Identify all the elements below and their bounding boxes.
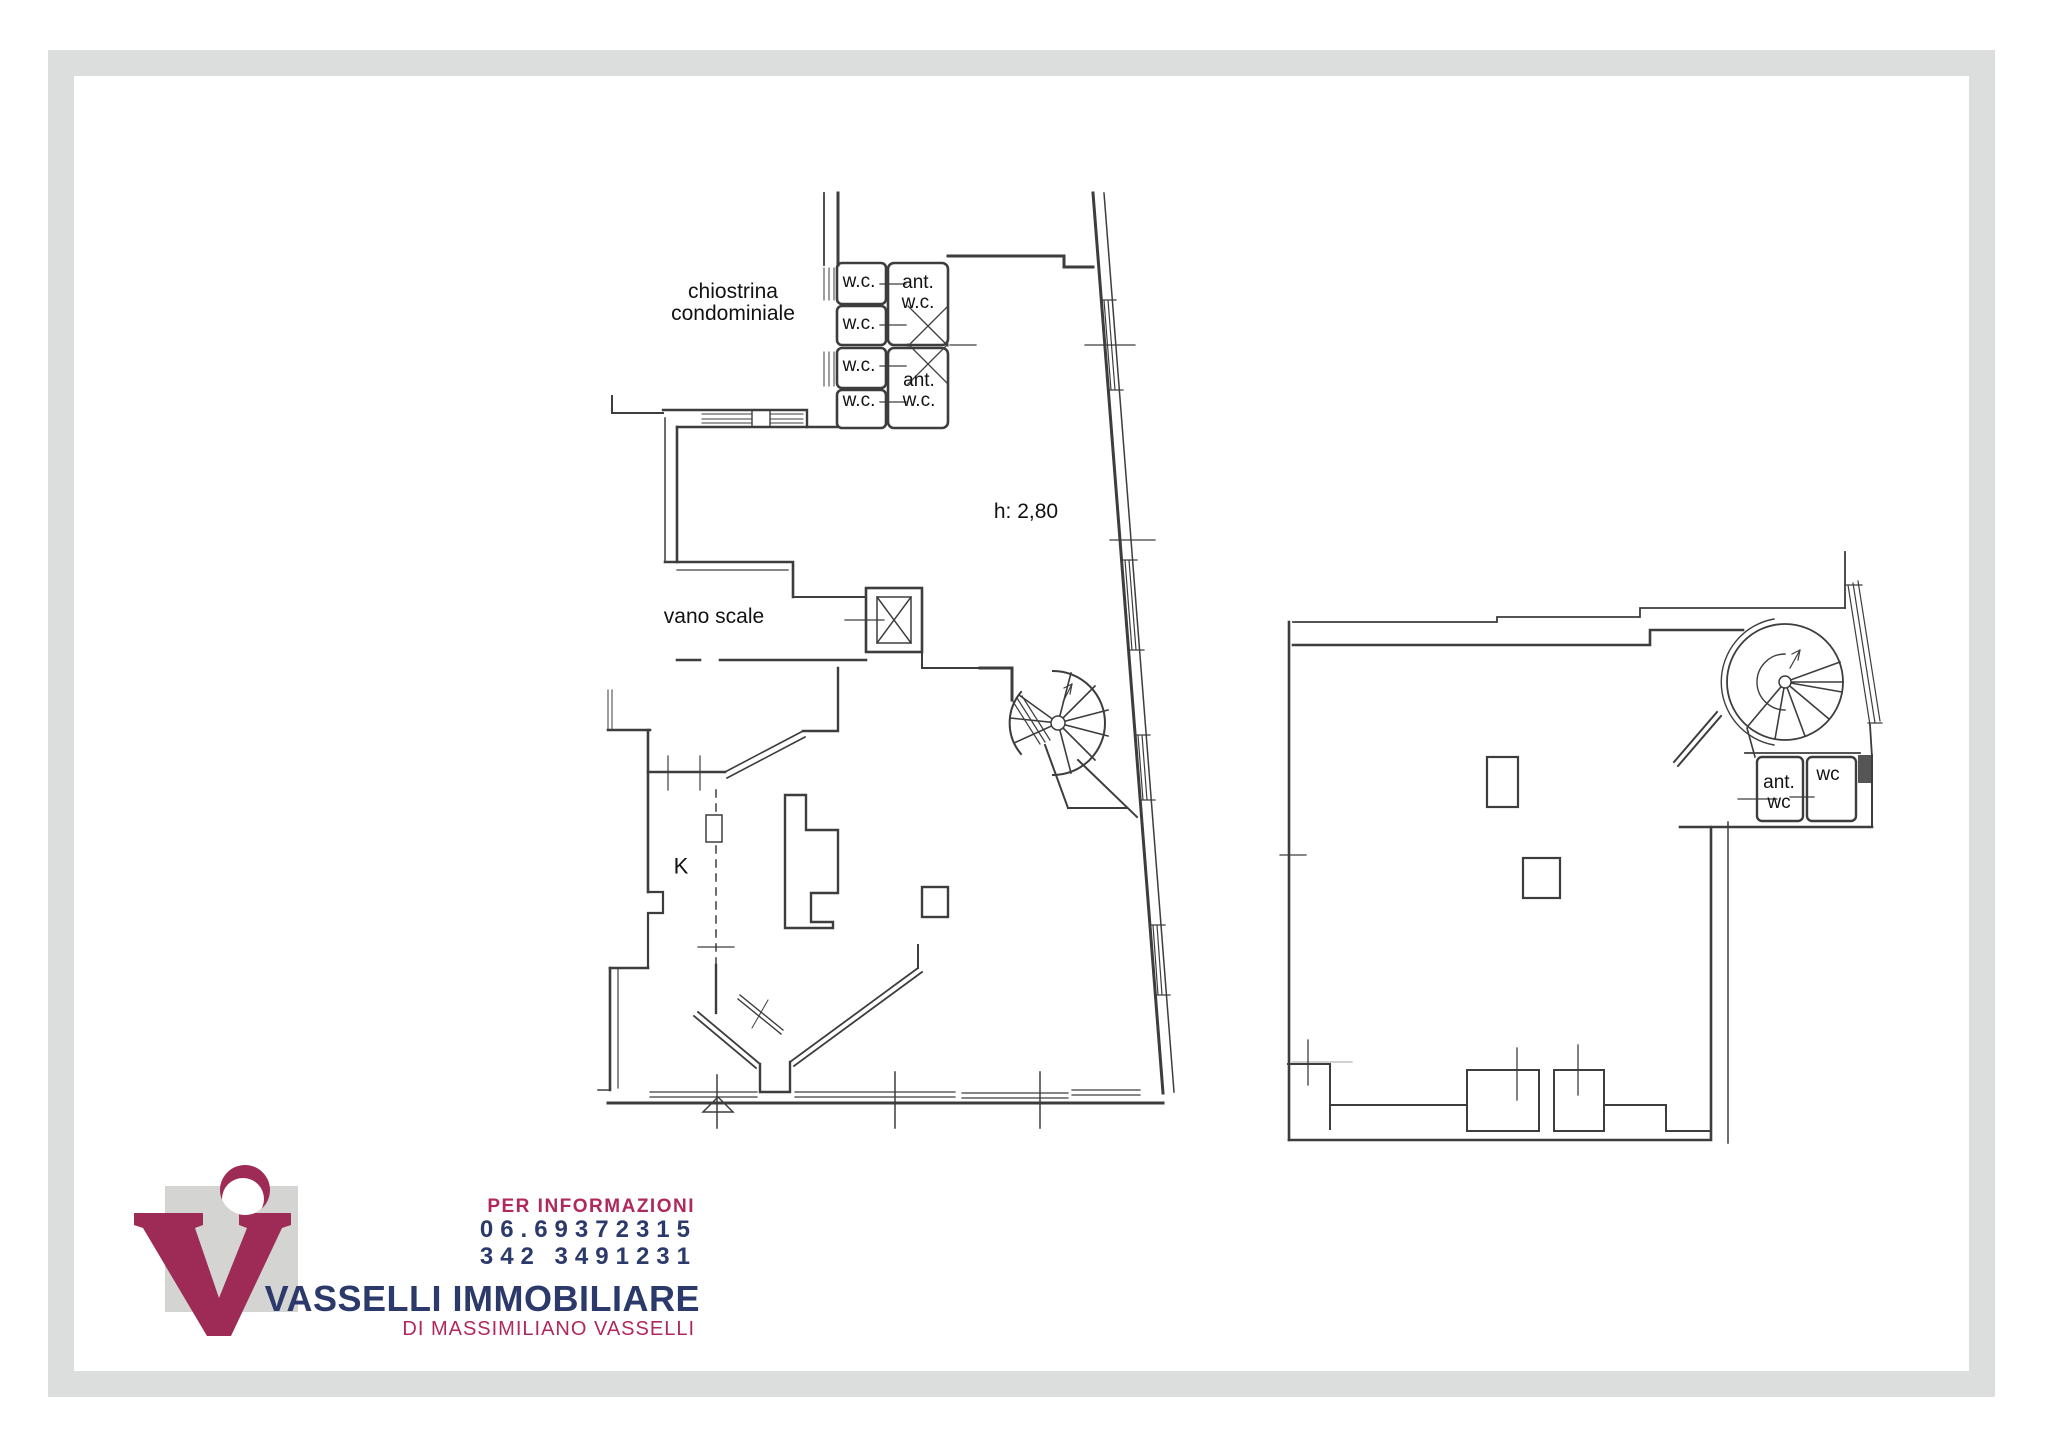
phone-number-primary: 06.69372315	[295, 1216, 697, 1244]
kitchen-label: K	[674, 854, 689, 877]
wc-label-4: w.c.	[843, 391, 876, 411]
ant-wc-bottom-label: ant. w.c.	[903, 371, 936, 411]
bottom-wall	[598, 1072, 1163, 1128]
wc-label-1: w.c.	[843, 272, 876, 292]
wc-label-2: w.c.	[843, 314, 876, 334]
chiostrina-label: chiostrina condominiale	[671, 281, 795, 325]
company-subtitle: DI MASSIMILIANO VASSELLI	[295, 1318, 695, 1341]
spiral-staircase-right	[1674, 619, 1843, 766]
company-name: VASSELLI IMMOBILIARE	[195, 1278, 700, 1320]
angled-bay	[694, 945, 922, 1092]
ceiling-height-label: h: 2,80	[994, 501, 1058, 523]
wc-label-3: w.c.	[843, 356, 876, 376]
ant-wc-top-label: ant. w.c.	[902, 273, 935, 313]
wc-right-label: wc	[1816, 765, 1839, 785]
stairwell-label: vano scale	[664, 606, 764, 628]
right-floor-plan	[1280, 552, 1882, 1143]
bottom-pillars	[1288, 1040, 1711, 1131]
phone-number-mobile: 342 3491231	[295, 1243, 697, 1271]
spiral-staircase	[1010, 671, 1137, 817]
kitchen-area	[608, 668, 838, 1090]
chiostrina-wall	[612, 396, 837, 427]
flyer-page: chiostrina condominiale w.c. w.c. w.c. w…	[0, 0, 2048, 1449]
ant-wc-right-label: ant. wc	[1763, 773, 1795, 813]
info-heading: PER INFORMAZIONI	[295, 1196, 695, 1218]
left-floor-plan	[598, 193, 1174, 1128]
